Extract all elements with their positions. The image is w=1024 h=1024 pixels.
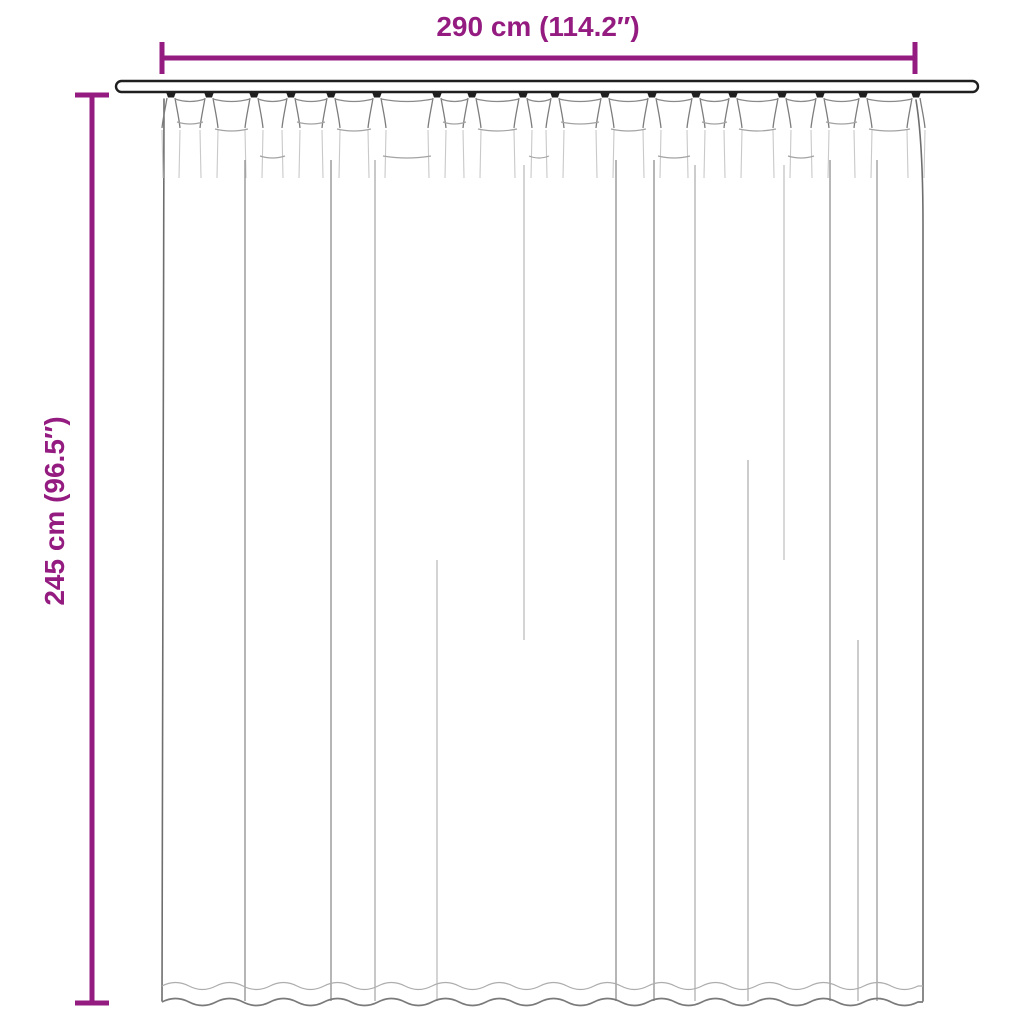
pleat-fold-right — [476, 98, 481, 128]
pleat-fold-right — [213, 98, 218, 128]
pleat-fold-left — [514, 98, 519, 128]
pleat-hook — [550, 92, 560, 98]
pleat-shadow-left — [643, 130, 644, 178]
pleat-shadow-left — [463, 130, 464, 178]
pleat-fold-left — [245, 98, 250, 128]
pleat-shadow-left — [546, 130, 547, 178]
pleat-hook — [432, 92, 442, 98]
pleat-hook — [815, 92, 825, 98]
pleat-shadow-right — [531, 130, 532, 178]
pleat-fold-right — [786, 98, 791, 128]
pleat-fold-right — [656, 98, 661, 128]
curtain — [116, 81, 978, 1006]
pleat-shadow-left — [854, 130, 855, 178]
top-edge-segment — [559, 99, 601, 102]
pleat-shadow-right — [828, 130, 829, 178]
pleat-fold-left — [428, 98, 433, 128]
pleat-fold-right — [559, 98, 564, 128]
top-edge-segment — [824, 99, 859, 102]
pleat-fold-right — [175, 98, 180, 128]
top-edge-segment — [700, 99, 729, 102]
top-edge-segment — [786, 99, 816, 102]
pleat-shadow-left — [596, 130, 597, 178]
top-edge-segment — [258, 99, 287, 102]
top-edge-segment — [737, 99, 778, 102]
pleat-hook — [911, 92, 921, 98]
pleat-shadow-right — [613, 130, 614, 178]
top-edge-segment — [867, 99, 912, 102]
width-dimension-label: 290 cm (114.2″) — [436, 11, 639, 42]
pleat-hook — [728, 92, 738, 98]
pleat-hook — [467, 92, 477, 98]
curtain-left-edge — [162, 99, 164, 1001]
pleat-shadow-right — [299, 130, 300, 178]
crease-line — [177, 122, 203, 124]
pleat-shadow-left — [200, 130, 201, 178]
pleat-hook — [518, 92, 528, 98]
pleat-fold-left — [724, 98, 729, 128]
pleat-hook — [647, 92, 657, 98]
pleat-shadow-left — [162, 130, 163, 178]
crease-line — [561, 122, 599, 124]
pleat-shadow-right — [339, 130, 340, 178]
pleat-fold-right — [295, 98, 300, 128]
pleat-hook — [691, 92, 701, 98]
pleat-shadow-right — [660, 130, 661, 178]
pleat-fold-right — [920, 98, 925, 128]
crease-line — [297, 122, 325, 124]
pleat-shadow-left — [907, 130, 908, 178]
curtain-dimension-diagram: 290 cm (114.2″) 245 cm (96.5″) — [0, 0, 1024, 1024]
height-dimension-label: 245 cm (96.5″) — [39, 416, 70, 605]
pleat-fold-left — [463, 98, 468, 128]
pleat-shadow-right — [385, 130, 386, 178]
pleat-fold-left — [200, 98, 205, 128]
pleat-fold-right — [258, 98, 263, 128]
pleat-fold-left — [546, 98, 551, 128]
top-edge-segment — [527, 99, 551, 102]
top-edge-segment — [335, 99, 373, 102]
pleat-shadow-left — [811, 130, 812, 178]
pleat-shadow-left — [724, 130, 725, 178]
crease-line — [826, 122, 857, 124]
top-edge-segment — [213, 99, 250, 102]
top-edge-segment — [441, 99, 468, 102]
hem-group — [162, 983, 923, 1006]
crease-line — [658, 156, 690, 158]
pleat-fold-left — [643, 98, 648, 128]
pleat-fold-right — [527, 98, 532, 128]
pleat-group — [162, 92, 925, 178]
pleat-fold-right — [441, 98, 446, 128]
crease-line — [260, 156, 285, 158]
pleat-fold-left — [687, 98, 692, 128]
crease-line — [702, 122, 727, 124]
pleat-shadow-right — [445, 130, 446, 178]
pleat-shadow-right — [179, 130, 180, 178]
pleat-hook — [858, 92, 868, 98]
pleat-shadow-right — [924, 130, 925, 178]
pleat-shadow-right — [262, 130, 263, 178]
pleat-fold-right — [609, 98, 614, 128]
pleat-shadow-left — [322, 130, 323, 178]
hem-fold-line — [162, 983, 923, 990]
pleat-shadow-left — [368, 130, 369, 178]
height-dimension: 245 cm (96.5″) — [39, 95, 109, 1003]
pleat-fold-left — [854, 98, 859, 128]
crease-line — [739, 129, 776, 131]
pleat-fold-right — [700, 98, 705, 128]
pleat-fold-left — [811, 98, 816, 128]
pleat-fold-right — [867, 98, 872, 128]
curtain-right-edge — [916, 100, 923, 1001]
pleat-shadow-right — [480, 130, 481, 178]
top-edge-segment — [476, 99, 519, 102]
pleat-shadow-left — [687, 130, 688, 178]
pleat-hook — [166, 92, 176, 98]
pleat-hook — [372, 92, 382, 98]
pleat-shadow-right — [871, 130, 872, 178]
width-dimension: 290 cm (114.2″) — [162, 11, 915, 74]
pleat-fold-right — [824, 98, 829, 128]
pleat-shadow-left — [282, 130, 283, 178]
pleat-fold-left — [322, 98, 327, 128]
curtain-bottom-edge — [162, 999, 923, 1006]
pleat-hook — [326, 92, 336, 98]
pleat-shadow-right — [790, 130, 791, 178]
pleat-fold-left — [368, 98, 373, 128]
pleat-fold-left — [596, 98, 601, 128]
pleat-hook — [600, 92, 610, 98]
top-edge-segment — [656, 99, 692, 102]
top-edge-segment — [175, 99, 205, 102]
pleat-fold-right — [737, 98, 742, 128]
pleat-hook — [249, 92, 259, 98]
pleat-hook — [777, 92, 787, 98]
pleat-fold-left — [907, 98, 912, 128]
pleat-fold-right — [381, 98, 386, 128]
pleat-shadow-right — [217, 130, 218, 178]
pleat-shadow-right — [741, 130, 742, 178]
pleat-fold-right — [335, 98, 340, 128]
pleat-fold-left — [282, 98, 287, 128]
top-edge-segment — [381, 99, 433, 102]
crease-line — [611, 129, 646, 131]
pleat-shadow-right — [563, 130, 564, 178]
pleat-hook — [204, 92, 214, 98]
crease-line — [383, 156, 431, 158]
curtain-rod — [116, 81, 978, 92]
crease-line — [788, 156, 814, 158]
top-edge-segment — [609, 99, 648, 102]
pleat-shadow-left — [514, 130, 515, 178]
crease-line — [215, 129, 248, 131]
crease-line — [443, 122, 466, 124]
pleat-hook — [286, 92, 296, 98]
pleat-shadow-left — [428, 130, 429, 178]
crease-line — [869, 129, 910, 131]
pleat-fold-left — [773, 98, 778, 128]
crease-line — [337, 129, 371, 131]
pleat-shadow-right — [704, 130, 705, 178]
fold-group — [245, 160, 877, 1001]
crease-line — [478, 129, 517, 131]
pleat-shadow-left — [773, 130, 774, 178]
top-edge-segment — [295, 99, 327, 102]
